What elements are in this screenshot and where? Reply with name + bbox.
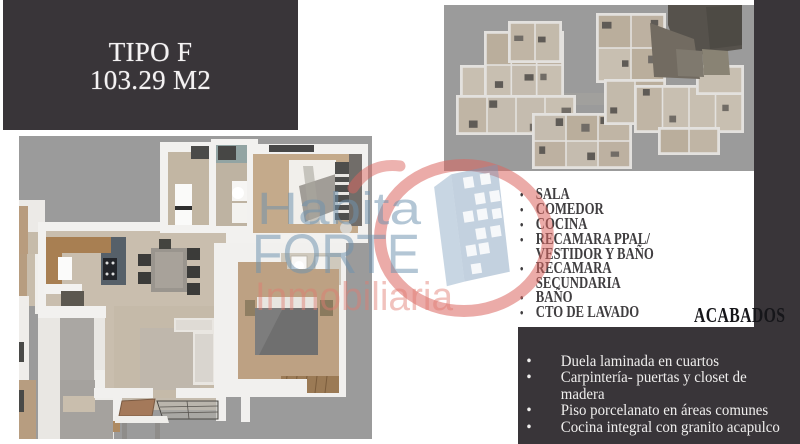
svg-text:Inmobiliaria: Inmobiliaria	[255, 275, 454, 319]
